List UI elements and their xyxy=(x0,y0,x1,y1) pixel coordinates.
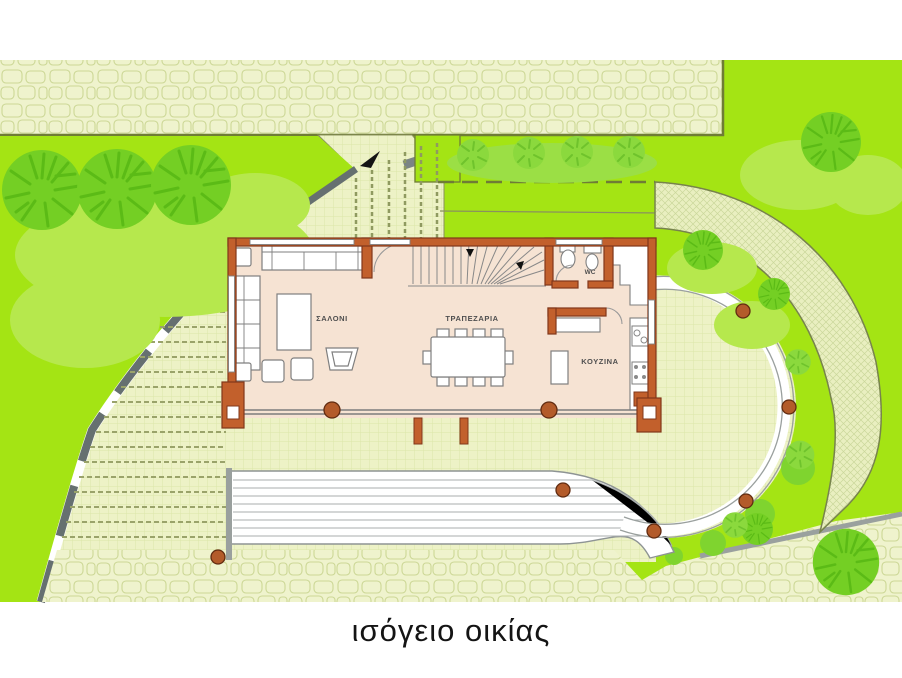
dining-room-label: ΤΡΑΠΕΖΑΡΙΑ xyxy=(445,314,498,323)
kitchen-label: ΚΟΥΖΙΝΑ xyxy=(581,357,618,366)
house: ΣΑΛΟΝΙ ΤΡΑΠΕΖΑΡΙΑ ΚΟΥΖΙΝΑ WC xyxy=(222,238,661,444)
stone-road xyxy=(0,60,723,135)
site-plan: ΣΑΛΟΝΙ ΤΡΑΠΕΖΑΡΙΑ ΚΟΥΖΙΝΑ WC xyxy=(0,0,902,678)
drawing-caption: ισόγειο οικίας xyxy=(0,613,902,649)
column xyxy=(541,402,557,418)
column xyxy=(324,402,340,418)
living-room-label: ΣΑΛΟΝΙ xyxy=(316,314,348,323)
page: ΣΑΛΟΝΙ ΤΡΑΠΕΖΑΡΙΑ ΚΟΥΖΙΝΑ WC ισόγειο οικ… xyxy=(0,0,902,678)
wc-label: WC xyxy=(585,269,596,276)
